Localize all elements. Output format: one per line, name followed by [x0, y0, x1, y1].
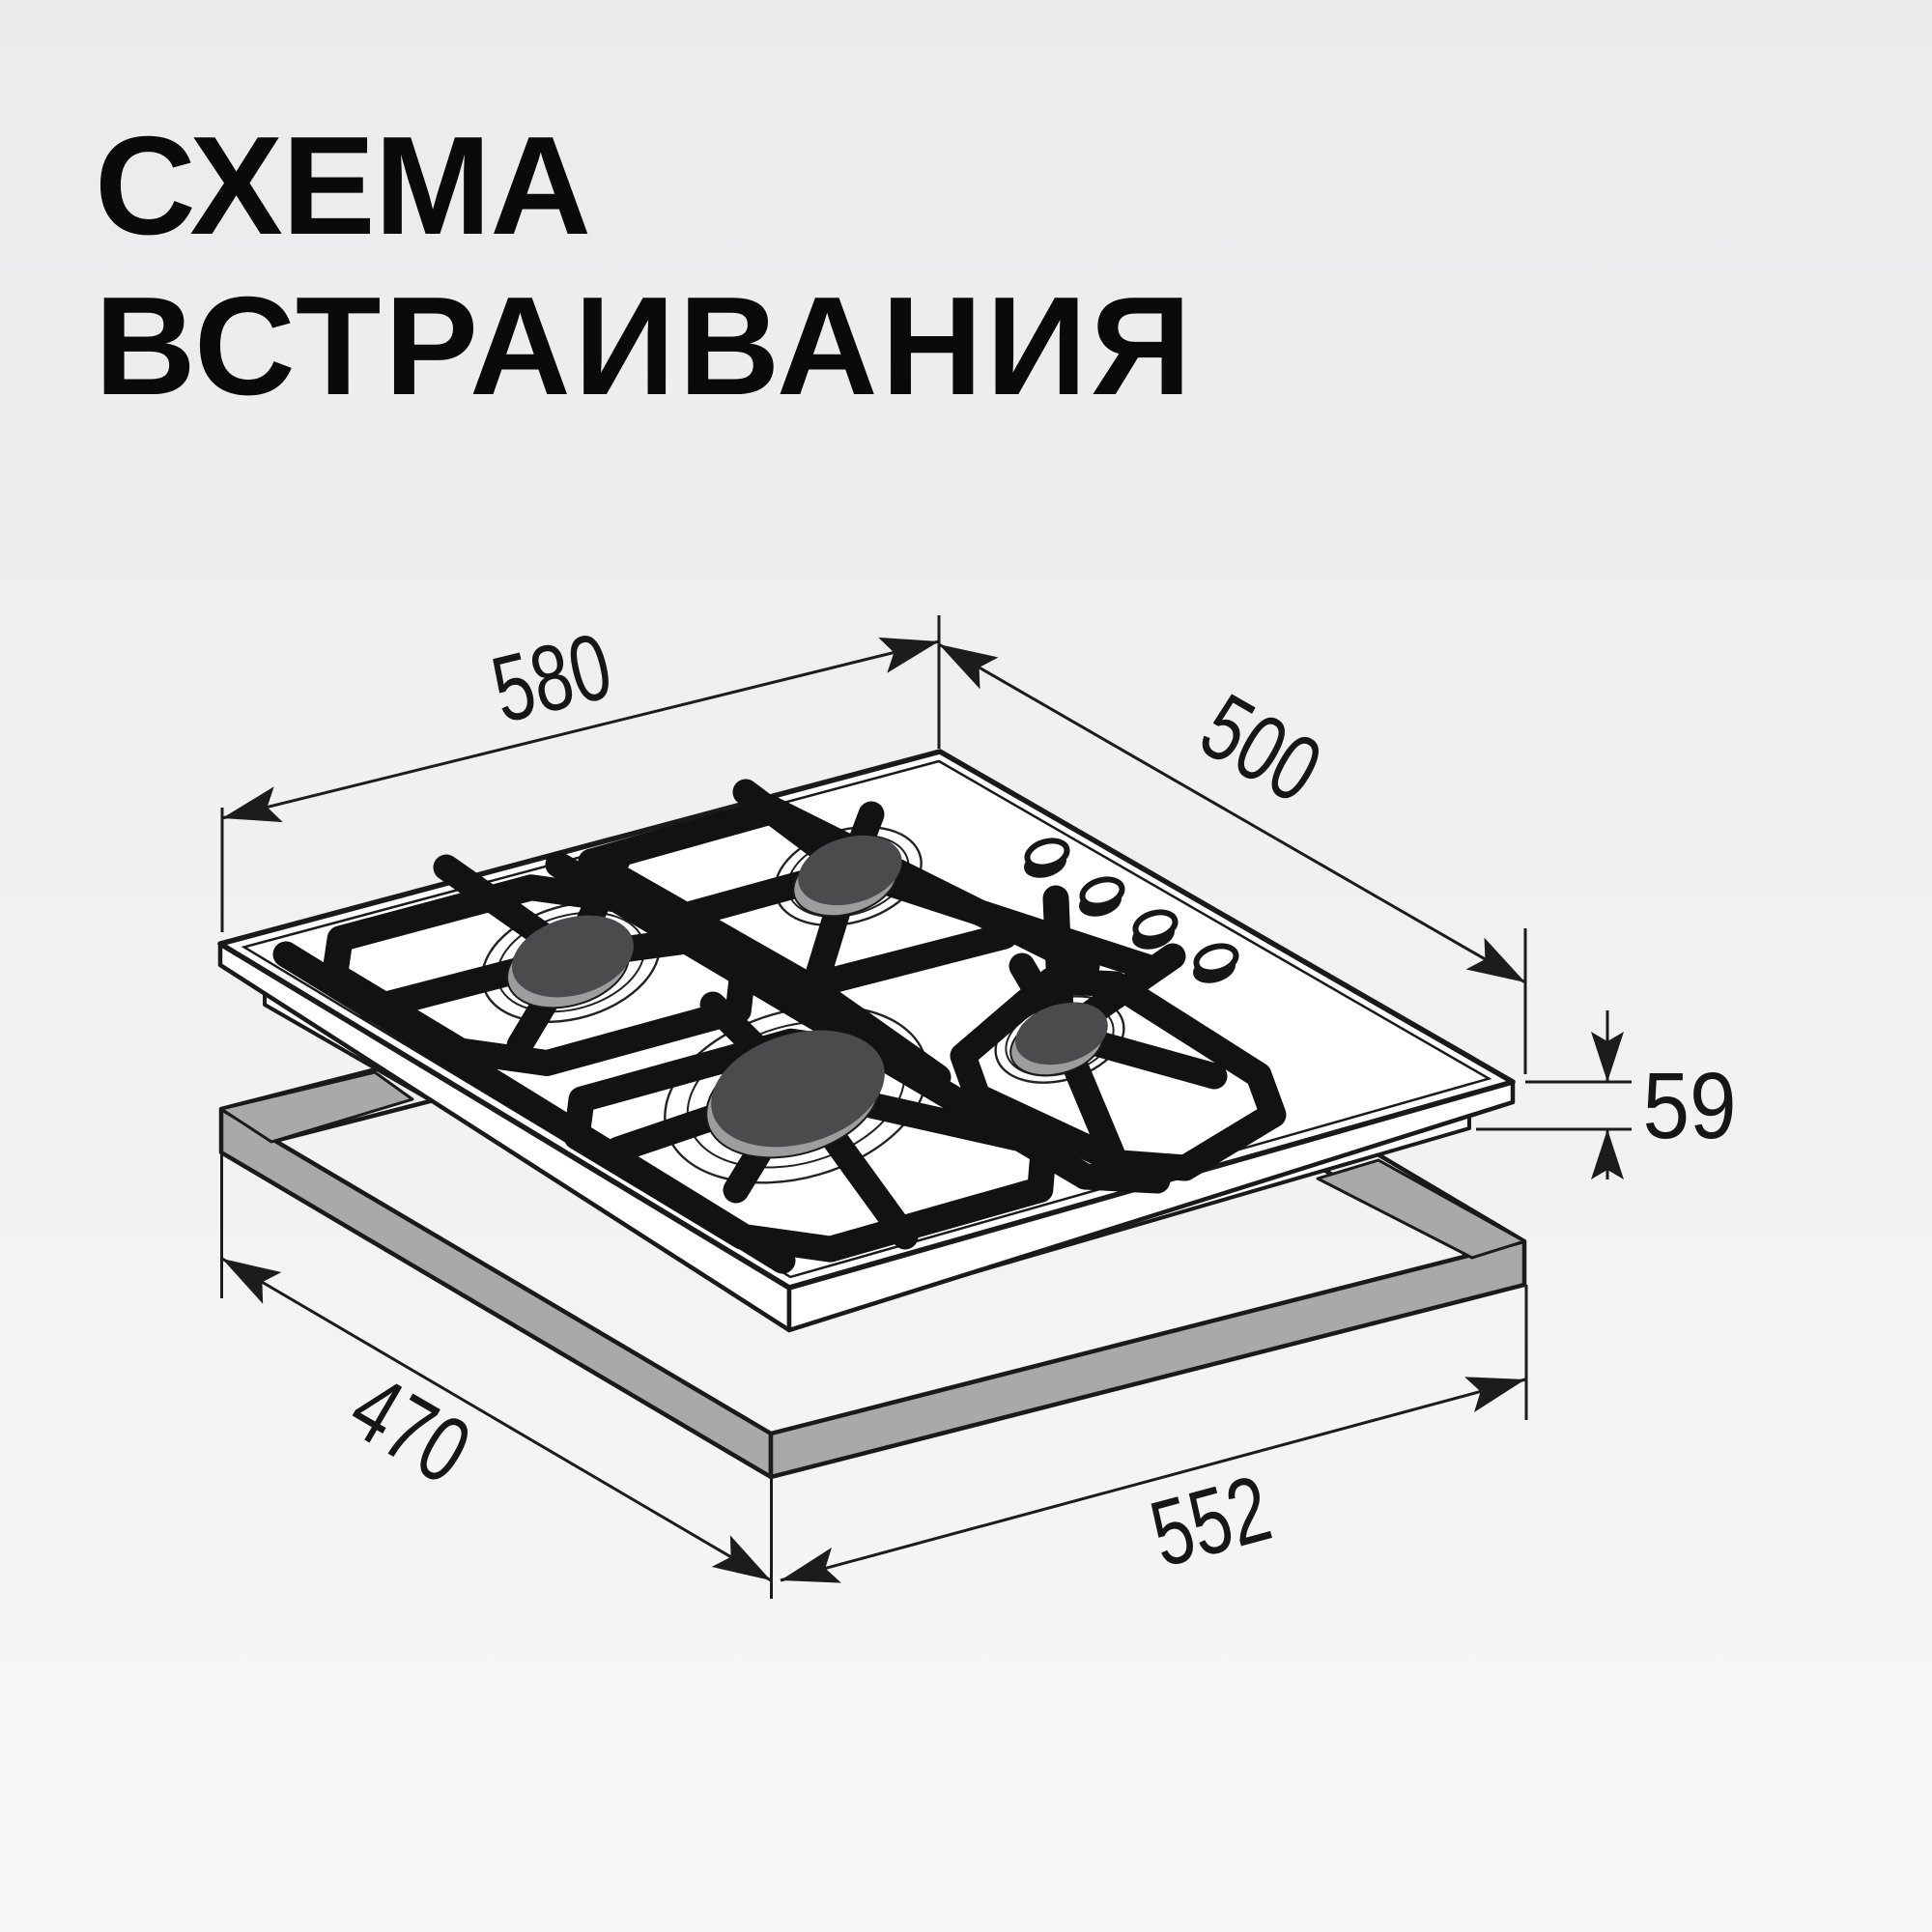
svg-text:ВСТРАИВАНИЯ: ВСТРАИВАНИЯ	[95, 268, 1195, 424]
svg-text:59: 59	[1642, 1053, 1736, 1158]
svg-text:СХЕМА: СХЕМА	[95, 107, 590, 264]
